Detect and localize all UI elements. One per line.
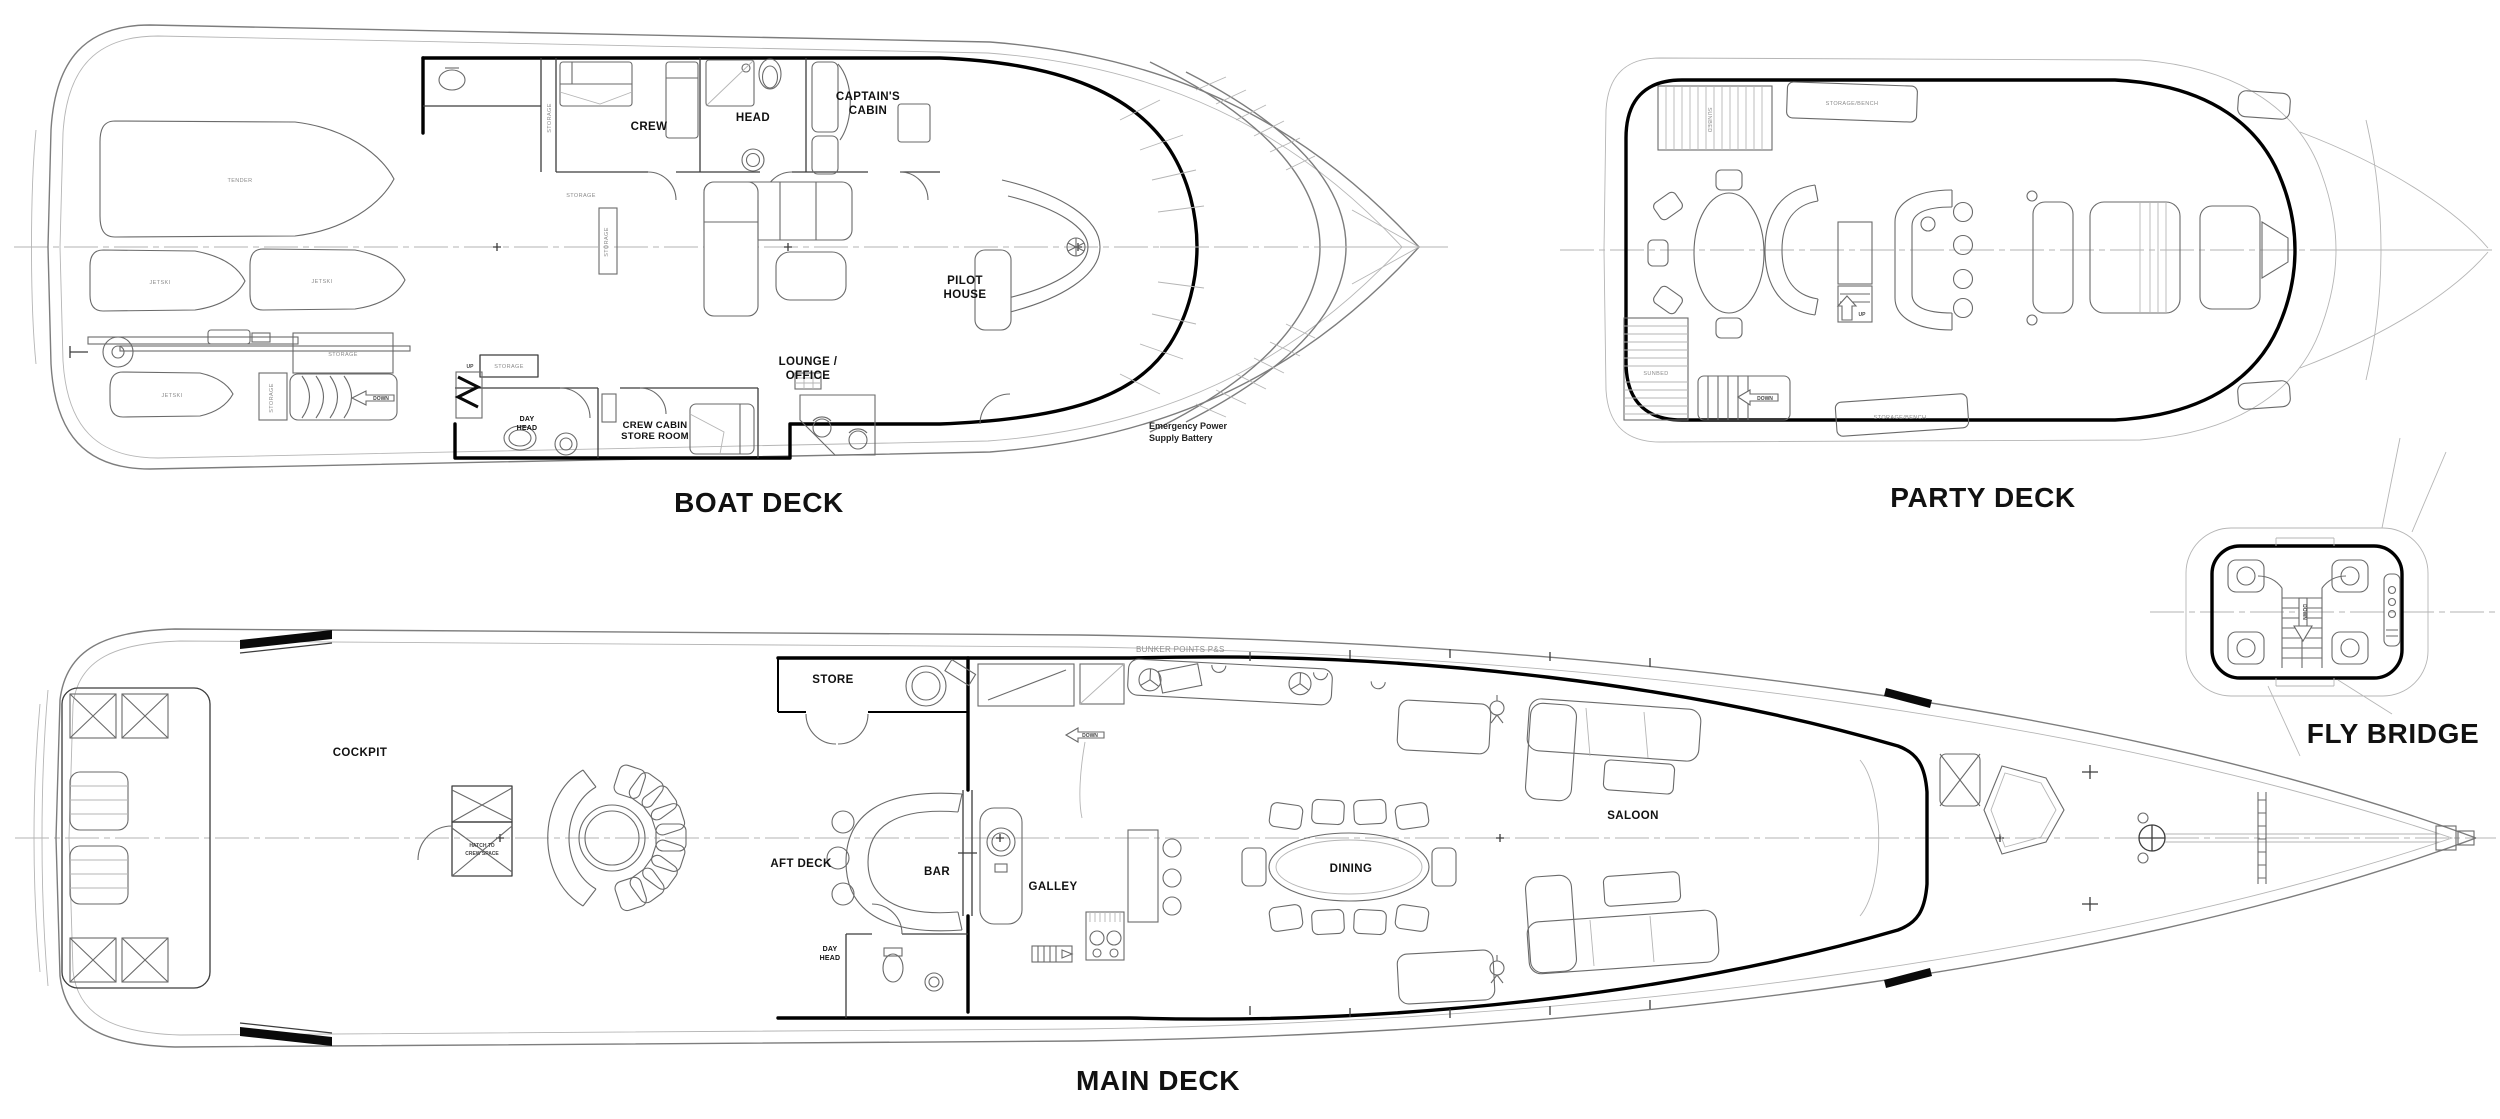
- storage-bench-label-2: STORAGE/BENCH: [1874, 415, 1927, 421]
- fly-bridge-stair: DOWN: [2258, 576, 2346, 668]
- party-bar: [1895, 190, 1973, 330]
- storage-label-6: STORAGE: [604, 227, 610, 257]
- aft-deck-label: AFT DECK: [770, 858, 832, 870]
- main-down-label: DOWN: [1082, 733, 1098, 739]
- aft-deck-bar-sofa: [827, 793, 962, 931]
- boat-deck-plan: UP: [14, 25, 1452, 518]
- boarding-gate: [1884, 688, 1932, 708]
- fly-bridge-title: FLY BRIDGE: [2307, 718, 2479, 749]
- down-label: DOWN: [373, 396, 389, 402]
- boat-day-head-label-1: DAY: [520, 416, 535, 423]
- galley-label: GALLEY: [1028, 881, 1077, 893]
- sunbed-aft: SUNBED: [1624, 318, 1688, 420]
- party-dining-set: [1648, 170, 1764, 338]
- boat-deckhouse-wall: [423, 58, 1197, 458]
- sunbed-label-1: SUNBED: [1706, 107, 1712, 132]
- hatch-label-2: CREW SPACE: [465, 851, 499, 857]
- storage-bench-label-1: STORAGE/BENCH: [1826, 101, 1879, 107]
- captains-cabin-furniture: [812, 62, 930, 174]
- hatch-to-crew-space: HATCH TO CREW SPACE: [418, 786, 512, 876]
- jetski-label-1: JETSKI: [149, 280, 170, 286]
- pilot-house-label-2: HOUSE: [944, 289, 987, 301]
- sink: [439, 70, 465, 90]
- boat-down-stair: DOWN: [290, 374, 397, 420]
- passage-down-stair: DOWN: [1066, 728, 1104, 818]
- bar-label: BAR: [924, 866, 950, 878]
- storage-bench-top: STORAGE/BENCH: [1786, 82, 1917, 123]
- storage-label-2: STORAGE: [269, 383, 275, 413]
- boat-deck-title: BOAT DECK: [674, 487, 844, 518]
- foredeck-fittings: [1940, 754, 2496, 911]
- pilot-house-furniture: [975, 100, 1206, 424]
- storage-label-1: STORAGE: [328, 352, 358, 358]
- deck-plans-drawing: UP: [0, 0, 2500, 1119]
- captains-cabin-label-1: CAPTAIN'S: [836, 91, 900, 103]
- main-deck-title: MAIN DECK: [1076, 1065, 1240, 1096]
- storage-label-3: STORAGE: [494, 364, 524, 370]
- boat-up-stair: UP: [456, 364, 482, 418]
- crew-cabin-store-room-label-2: STORE ROOM: [621, 431, 689, 442]
- party-deck-plan: SUNBED STORAGE/BENCH STORAGE/BENCH SUNBE…: [1560, 58, 2492, 513]
- saloon-glass-door: [958, 790, 977, 916]
- cockpit-label: COCKPIT: [333, 747, 388, 759]
- head-label: HEAD: [736, 112, 770, 124]
- crew-mess-counter: [423, 58, 556, 172]
- emergency-power-label-1: Emergency Power: [1149, 421, 1228, 431]
- pilot-house-label-1: PILOT: [947, 275, 983, 287]
- fly-bridge-plan: DOWN FLY BRIDGE: [2150, 438, 2498, 756]
- party-settee: UP: [1765, 185, 1872, 322]
- party-down-stair: DOWN: [1698, 376, 1790, 420]
- party-deck-title: PARTY DECK: [1890, 482, 2075, 513]
- boarding-gate: [1884, 968, 1932, 988]
- party-down-label: DOWN: [1757, 396, 1773, 402]
- party-up-label: UP: [1859, 312, 1867, 318]
- main-day-head: DAY HEAD: [820, 904, 968, 1018]
- storage-bench-bottom: STORAGE/BENCH: [1835, 393, 1969, 436]
- lounge-office-label-1: LOUNGE /: [779, 356, 838, 368]
- bunker-points-fittings: [1127, 659, 1386, 708]
- captains-cabin-label-2: CABIN: [849, 105, 887, 117]
- main-day-head-label-1: DAY: [823, 946, 838, 953]
- hatch-label-1: HATCH TO: [469, 843, 494, 849]
- crew-label: CREW: [631, 121, 668, 133]
- main-day-head-label-2: HEAD: [820, 955, 841, 962]
- dining-label: DINING: [1330, 863, 1373, 875]
- davit-crane: [70, 330, 410, 367]
- galley-furniture: [978, 664, 1181, 962]
- saloon-label: SALOON: [1607, 810, 1659, 822]
- boarding-gate: [240, 1027, 332, 1046]
- projection-lines: [2382, 438, 2446, 532]
- crew-cabin-furniture: [560, 62, 698, 138]
- storage-label-4: STORAGE: [547, 103, 553, 133]
- crew-cabin-store-room-label-1: CREW CABIN: [623, 420, 688, 431]
- tender-label: TENDER: [227, 178, 252, 184]
- jetski-label-3: JETSKI: [161, 393, 182, 399]
- sunbed-label-2: SUNBED: [1643, 371, 1668, 377]
- lounge-office-label-2: OFFICE: [786, 370, 831, 382]
- store-label: STORE: [812, 674, 853, 686]
- storage-label-5: STORAGE: [566, 193, 596, 199]
- up-label: UP: [467, 364, 475, 370]
- bunker-points-label: BUNKER POINTS P&S: [1136, 645, 1225, 654]
- jetski-label-2: JETSKI: [311, 279, 332, 285]
- fly-down-label: DOWN: [2301, 604, 2307, 620]
- saloon-furniture: [1397, 695, 1720, 1004]
- emergency-power-label-2: Supply Battery: [1149, 433, 1213, 443]
- boarding-gate: [240, 630, 332, 649]
- store-room: [778, 658, 976, 744]
- main-deck-plan: HATCH TO CREW SPACE: [15, 629, 2496, 1096]
- boat-day-head-label-2: HEAD: [517, 425, 538, 432]
- yacht-deck-plan-sheet: UP: [0, 0, 2500, 1119]
- boat-day-head-storeroom: [455, 355, 758, 458]
- sunbed-forward: SUNBED: [1658, 86, 1772, 150]
- lounge-office-furniture: [704, 182, 875, 455]
- fly-bridge-console: [2384, 574, 2400, 646]
